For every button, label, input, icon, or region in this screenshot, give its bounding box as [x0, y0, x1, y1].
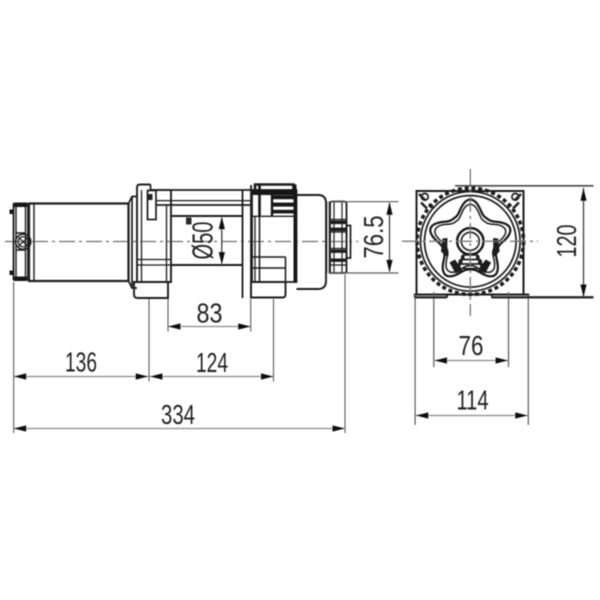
svg-text:124: 124 — [196, 347, 228, 378]
svg-text:120: 120 — [551, 225, 582, 258]
svg-text:334: 334 — [161, 399, 195, 430]
svg-text:Ø50: Ø50 — [188, 222, 220, 260]
svg-text:76.5: 76.5 — [358, 216, 389, 259]
svg-text:136: 136 — [65, 347, 97, 378]
svg-text:114: 114 — [457, 385, 489, 416]
svg-text:83: 83 — [197, 298, 223, 329]
svg-text:76: 76 — [459, 330, 484, 361]
